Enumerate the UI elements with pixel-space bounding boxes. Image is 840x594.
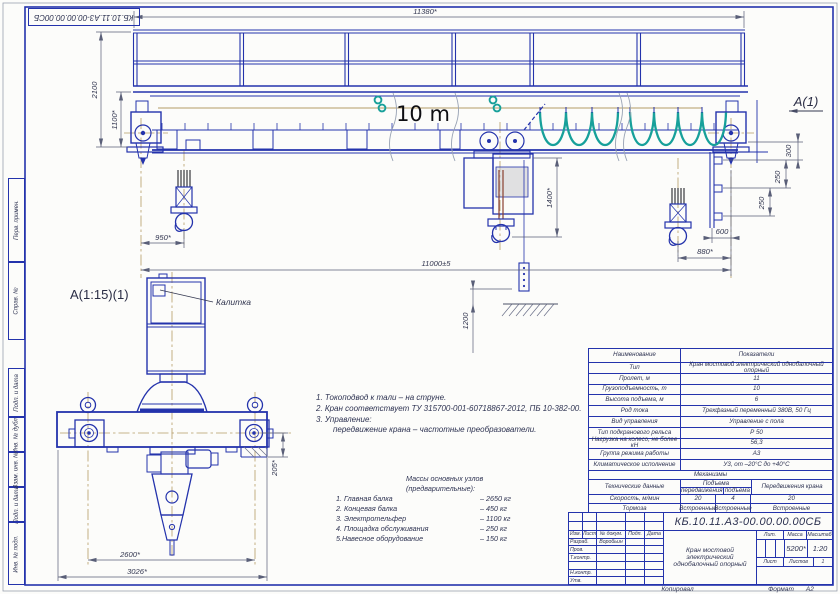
razrab-name: Воробьин — [597, 539, 626, 546]
spec-row: Климатическое исполнениеУ3, от –20°С до … — [589, 459, 832, 470]
mass-name: 5.Навесное оборудование — [336, 534, 480, 544]
spec-table: Наименование Показатели ТипКран мостовой… — [588, 348, 833, 514]
note-line: 2. Кран соответствует ТУ 315700-001-6071… — [316, 404, 588, 415]
mech-header-row: Технические данные Подъема передвижения … — [589, 479, 832, 494]
mass-item: 4. Площадка обслуживания– 250 кг — [336, 524, 550, 534]
mass-item: 1. Главная балка– 2650 кг — [336, 494, 550, 504]
runway-bracket — [710, 152, 722, 228]
spec-value: 56,3 — [681, 439, 832, 449]
title-block-right: Лит. Масса Масштаб 5200* 1:20 Лист Листо… — [757, 531, 832, 584]
product-title: Кран мостовой электрический однобалочный… — [664, 531, 757, 584]
lit-cells — [757, 540, 785, 557]
mech-speed-move: 20 — [681, 495, 716, 504]
row-nkontr: Н.контр. — [569, 570, 597, 577]
title-block: КБ.10.11.А3-00.00.00.00СБ Изм. Лист № до… — [568, 512, 833, 585]
hook-left — [171, 170, 197, 231]
margin-inv-podl: Инв. № подл. — [8, 522, 25, 585]
note-line: 1. Токоподвод к тали – на струне. — [316, 393, 588, 404]
spec-value: А3 — [681, 449, 832, 459]
top-stamp: КБ.10.11.А3-00.00.00.00СБ — [28, 8, 140, 26]
margin-label: Инв. № дубл. — [14, 416, 20, 453]
format-label: Формат — [768, 586, 794, 593]
spec-header-name: Наименование — [589, 349, 681, 362]
mech-hoist-group: Подъема передвижения подъема — [681, 480, 752, 494]
margin-label: Подп. и дата — [14, 374, 20, 412]
margin-inv-dubl: Инв. № дубл. — [8, 417, 25, 452]
copied-label: Копировал — [630, 586, 725, 593]
spec-row: Высота подъема, м6 — [589, 394, 832, 405]
mass-value: 5200* — [785, 540, 808, 557]
margin-label: Инв. № подл. — [14, 535, 20, 572]
end-carriage-right — [713, 100, 768, 165]
mass-name: 3. Электротельфер — [336, 514, 480, 524]
spec-name: Климатическое исполнение — [589, 460, 681, 470]
platform-railing — [133, 30, 748, 92]
view-label-a1: А(1) — [793, 94, 819, 109]
format-block: Формат А2 — [748, 586, 834, 593]
doc-number: КБ.10.11.А3-00.00.00.00СБ — [664, 513, 832, 530]
margin-label: Справ. № — [14, 287, 20, 314]
note-line: передвижение крана – частотные преобразо… — [316, 425, 588, 436]
masses-title: Массы основных узлов (предварительные): — [336, 474, 550, 494]
col-izm: Изм. — [569, 531, 583, 538]
dim-600: 600 — [716, 227, 729, 236]
ground-hatch — [502, 304, 558, 316]
mass-item: 2. Концевая балка– 450 кг — [336, 504, 550, 514]
mass-value: – 450 кг — [480, 504, 507, 514]
margin-podp-data-2: Подп. и дата — [8, 487, 25, 522]
spec-name: Высота подъема, м — [589, 395, 681, 405]
col-podp: Подп. — [626, 531, 645, 538]
detail-view-label: А(1:15)(1) — [70, 287, 129, 302]
spec-row: Вид управленияУправление с пола — [589, 416, 832, 427]
margin-sprav-no: Справ. № — [8, 262, 25, 340]
dim-total-height: 2100 — [90, 81, 99, 100]
row-tkontr: Т.контр. — [569, 554, 597, 561]
margin-vzam-inv: Взам. инв. № — [8, 452, 25, 487]
mech-sub-lift: подъема — [724, 488, 751, 494]
dim-300: 300 — [784, 144, 793, 157]
spec-name: Пролет, м — [589, 374, 681, 384]
spec-row: Род токаТрехфазный переменный 380В, 50 Г… — [589, 405, 832, 416]
mass-value: – 150 кг — [480, 534, 507, 544]
mech-speed-lift: 4 — [716, 495, 751, 504]
dim-250a: 250 — [773, 170, 782, 184]
spec-row: Грузоподъемность, т10 — [589, 384, 832, 395]
mass-value: – 250 кг — [480, 524, 507, 534]
mass-value: – 1100 кг — [480, 514, 510, 524]
spec-value: 11 — [681, 374, 832, 384]
spec-value: Трехфазный переменный 380В, 50 Гц — [681, 406, 832, 416]
note-line: 3. Управление: — [316, 415, 588, 426]
scale-label: Масштаб — [807, 531, 832, 539]
spec-row: ТипКран мостовой электрический однобалоч… — [589, 362, 832, 373]
gate-callout: Калитка — [216, 297, 251, 307]
detail-view — [57, 274, 273, 555]
row-prov: Пров. — [569, 546, 597, 553]
spec-value: У3, от –20°С до +40°С — [681, 460, 832, 470]
dim-girder-height: 1100* — [110, 109, 119, 129]
mass-name: 2. Концевая балка — [336, 504, 480, 514]
dim-pendant-height: 1200 — [461, 312, 470, 330]
mass-label: Масса — [784, 531, 807, 539]
dim-top-length: 11380* — [413, 7, 438, 16]
dim-span: 11000±5 — [422, 259, 452, 268]
col-list: Лист — [583, 531, 597, 538]
dim-left-hook: 950* — [155, 233, 172, 242]
dim-250b: 250 — [757, 196, 766, 210]
signature-grid: Изм. Лист № докум. Подп. Дата Разраб. Во… — [569, 531, 664, 584]
spec-value: Управление с пола — [681, 417, 832, 427]
mass-name: 1. Главная балка — [336, 494, 480, 504]
spec-value: Р 50 — [681, 428, 832, 438]
spec-name: Тип — [589, 363, 681, 373]
mech-tech-label: Технические данные — [589, 480, 681, 494]
row-utv: Утв. — [569, 577, 597, 584]
top-stamp-number: КБ.10.11.А3-00.00.00.00СБ — [34, 13, 134, 22]
mech-sub-move: передвижения — [681, 488, 724, 494]
mass-name: 4. Площадка обслуживания — [336, 524, 480, 534]
mech-speed-row: Скорость, м/мин 20 4 20 — [589, 494, 832, 504]
margin-label: Подп. и дата — [14, 486, 20, 524]
lit-label: Лит. — [757, 531, 784, 539]
spec-row: Нагрузка на колесо, не более кН56,3 — [589, 438, 832, 449]
spec-row: Пролет, м11 — [589, 373, 832, 384]
dim-wheel-base: 2600* — [119, 550, 141, 559]
mech-speed-crane: 20 — [751, 495, 832, 504]
mass-item: 5.Навесное оборудование– 150 кг — [336, 534, 550, 544]
mech-crane-label: Передвижения крана — [752, 480, 832, 494]
spec-value: Кран мостовой электрический однобалочный… — [681, 363, 832, 373]
spec-name: Нагрузка на колесо, не более кН — [589, 439, 681, 449]
spec-name: Вид управления — [589, 417, 681, 427]
margin-podp-data-1: Подп. и дата — [8, 368, 25, 417]
span-annotation: 10 m — [396, 102, 450, 126]
mass-value: – 2650 кг — [480, 494, 511, 504]
mech-section-title: Механизмы — [589, 471, 832, 479]
sheet-label: Лист — [757, 558, 784, 566]
margin-label: Перв. примен. — [14, 200, 20, 240]
mech-section-row: Механизмы — [589, 470, 832, 479]
mass-item: 3. Электротельфер– 1100 кг — [336, 514, 550, 524]
electric-hoist — [464, 132, 533, 242]
mech-speed-label: Скорость, м/мин — [589, 495, 681, 504]
margin-label: Взам. инв. № — [14, 451, 20, 488]
spec-value: 10 — [681, 385, 832, 395]
dim-overall-width: 3026* — [127, 567, 148, 576]
dim-right-hook: 880* — [697, 247, 714, 256]
drawing-sheet: 11380* 2100 1100* 1400* 950* 11000±5 120… — [0, 0, 840, 594]
spec-name: Род тока — [589, 406, 681, 416]
col-docum: № докум. — [597, 531, 626, 538]
title-block-spare-grid — [569, 513, 664, 530]
technical-notes: 1. Токоподвод к тали – на струне. 2. Кра… — [316, 393, 588, 436]
scale-value: 1:20 — [808, 540, 832, 557]
spec-name: Группа режима работы — [589, 449, 681, 459]
dim-hoist-drop: 1400* — [545, 187, 554, 208]
spec-name: Грузоподъемность, т — [589, 385, 681, 395]
col-data: Дата — [645, 531, 663, 538]
sheets-label: Листов — [784, 558, 814, 566]
margin-perv-primen: Перв. примен. — [8, 178, 25, 262]
row-razrab: Разраб. — [569, 539, 597, 546]
spec-row: Группа режима работыА3 — [589, 448, 832, 459]
format-value: А2 — [806, 586, 814, 593]
masses-list: Массы основных узлов (предварительные): … — [336, 474, 550, 544]
spec-value: 6 — [681, 395, 832, 405]
sheets-value: 1 — [814, 558, 832, 566]
dim-205: 205* — [270, 459, 279, 477]
